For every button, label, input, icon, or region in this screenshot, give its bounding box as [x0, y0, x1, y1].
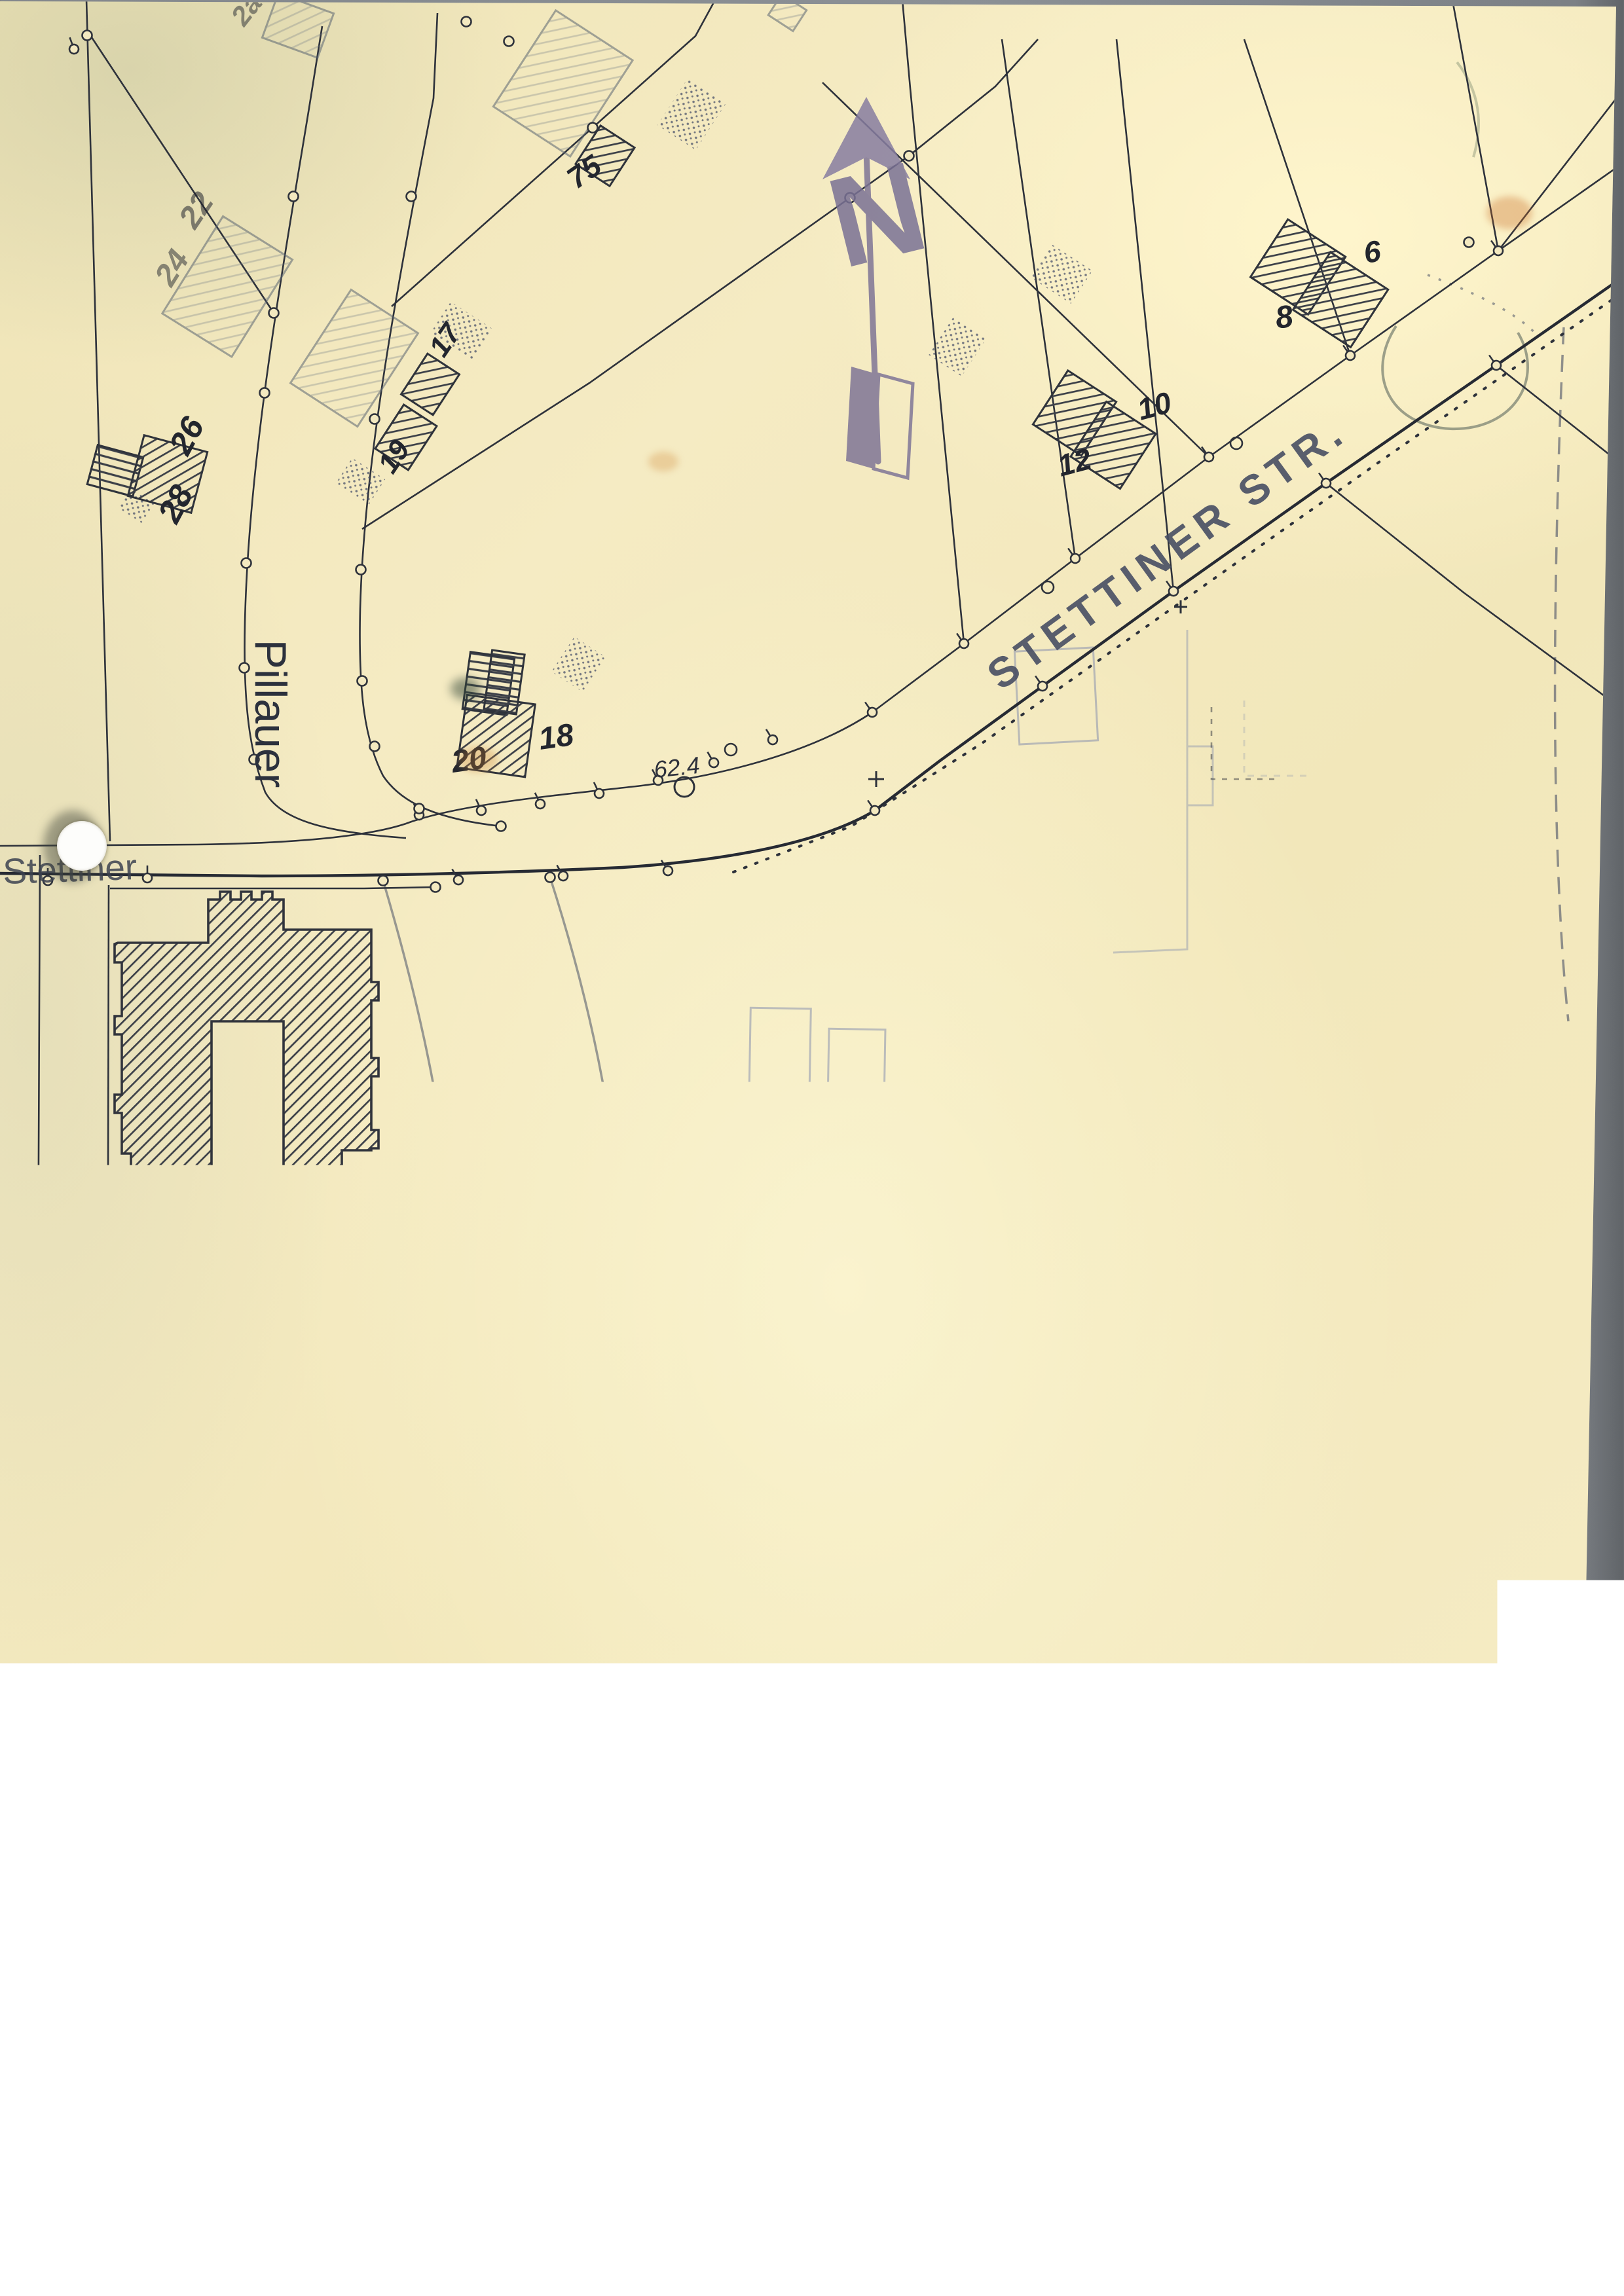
building-top-left-faded — [162, 0, 807, 427]
gepr-label: Gepr. — [985, 2132, 1043, 2157]
street-label-uhlandstr: VERL. UHLANDSTR. — [157, 1417, 397, 1781]
map-paper-sheet: N STETTINER STR. Pillauer Stettiner STIC… — [0, 0, 1624, 2296]
punch-hole — [58, 1464, 110, 1516]
drawing-title: Bunker Stettiner Str. — [985, 2206, 1393, 2246]
punch-hole — [57, 821, 107, 871]
building-17 — [401, 354, 460, 415]
betrieb-dotted-line — [1536, 2128, 1611, 2133]
worn-white-patch — [642, 1984, 766, 2039]
rust-stain — [1486, 196, 1532, 229]
betrieb-label: Betrieb — [1535, 2064, 1621, 2092]
massstab-value: 1 : 1000 . — [1410, 2215, 1579, 2252]
graphite-smudge — [451, 1192, 490, 1235]
date-day-month: 24. 3. — [1367, 2093, 1467, 2128]
graphite-smudge — [451, 678, 481, 700]
dark-bar-mark — [445, 1567, 555, 1593]
street-label-pillauer: Pillauer — [246, 640, 295, 788]
elevation-label: 62.4 — [653, 752, 701, 783]
north-letter: N — [815, 134, 939, 295]
fach-label: Fach — [1189, 2159, 1238, 2181]
site-plan-canvas: N STETTINER STR. Pillauer Stettiner STIC… — [0, 0, 1624, 2296]
stipple-garden-patches — [118, 79, 1092, 2296]
den-label: den — [1306, 2101, 1350, 2128]
title-block: Gez. Gepr. Dat. Name Fürth i.B. Betrieb … — [971, 2054, 1624, 2272]
rust-stain — [458, 746, 498, 773]
name-label: Name — [1206, 2067, 1263, 2089]
dat-label: Dat. — [1120, 2067, 1160, 2089]
railway-dashed-lines — [0, 1749, 327, 2296]
no-label: No. — [1252, 2159, 1285, 2181]
road-edge-line — [178, 2064, 211, 2296]
date-dotted-line — [1304, 2128, 1527, 2133]
rust-stain — [648, 452, 678, 471]
house-number-18: 18 — [536, 718, 576, 757]
north-arrow: N — [815, 97, 939, 478]
street-label-stettiner: STETTINER STR. — [978, 407, 1356, 699]
worn-white-patch — [282, 2154, 360, 2193]
date-year: 1965 — [1475, 2092, 1564, 2127]
map-labels: STETTINER STR. Pillauer Stettiner STICHS… — [2, 407, 1356, 2112]
house-number-6: 6 — [1361, 234, 1383, 270]
house-number-22: 22 — [172, 186, 221, 235]
massstab-box: Maßstab: 1 : 1000 . — [1356, 2187, 1624, 2263]
signature-handwriting — [1200, 2094, 1291, 2136]
uhlandstrasse-dashed — [117, 1418, 623, 2296]
label-nr41: Nr.41 — [32, 1897, 93, 1988]
scanned-site-plan: N STETTINER STR. Pillauer Stettiner STIC… — [0, 0, 1624, 2296]
massstab-dotted-line — [1365, 2250, 1614, 2255]
city-label: Fürth i.B. — [1344, 2062, 1477, 2094]
street-label-stichstr: STICHSTR. NR.4 — [932, 1180, 1276, 1286]
house-number-2a: 2a — [224, 0, 267, 31]
bunker-building — [115, 892, 378, 1190]
gez-label: Gez. — [985, 2100, 1037, 2127]
rust-stain — [622, 1663, 681, 1686]
